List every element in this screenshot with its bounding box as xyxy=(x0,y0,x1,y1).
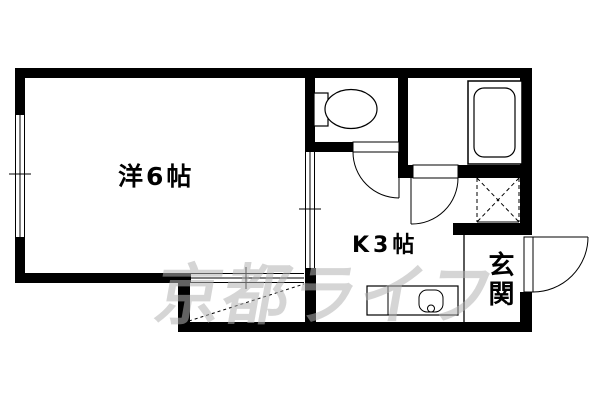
toilet-bowl xyxy=(325,90,377,129)
room-label-entrance: 玄関 xyxy=(486,251,512,309)
floorplan-drawing xyxy=(0,0,600,400)
toilet-icon xyxy=(314,90,377,129)
wall-kitchen-left xyxy=(305,268,316,322)
washing-machine-space-icon xyxy=(477,178,519,222)
bath-door-opening xyxy=(413,165,458,178)
wall-toilet-bottom xyxy=(305,142,353,152)
wall-bottom xyxy=(178,322,532,332)
windows-group xyxy=(9,115,321,289)
wall-entrance-top xyxy=(453,223,532,235)
sink-drain xyxy=(428,305,435,312)
room-label-western-room: 洋6帖 xyxy=(118,164,194,189)
bathtub-icon xyxy=(468,81,522,164)
dashed-diagonal-line xyxy=(189,284,304,321)
wall-right-lower xyxy=(520,292,532,332)
window-left xyxy=(9,115,31,237)
entrance-door-leaf xyxy=(524,237,533,292)
bath-door-icon xyxy=(411,178,458,224)
floorplan-canvas: 洋6帖 K3帖 玄関 京都ライフ xyxy=(0,0,600,400)
toilet-door-icon xyxy=(353,152,399,198)
entrance-door-icon xyxy=(533,237,588,292)
wall-mainroom-bottom xyxy=(15,273,191,283)
wall-top xyxy=(15,68,532,78)
window-mainroom-bottom xyxy=(191,267,304,289)
toilet-door-opening xyxy=(353,142,399,152)
kitchen-sink-counter-icon xyxy=(367,286,458,315)
kitchen-counter xyxy=(367,286,458,315)
room-label-kitchen: K3帖 xyxy=(352,235,418,257)
window-partition-mainroom-kitchen xyxy=(299,152,321,268)
wall-bath-bottom-left xyxy=(398,165,413,178)
wall-bath-bottom-right xyxy=(458,165,532,178)
wall-left-upper xyxy=(15,68,25,115)
bathtub-inner xyxy=(474,88,515,157)
